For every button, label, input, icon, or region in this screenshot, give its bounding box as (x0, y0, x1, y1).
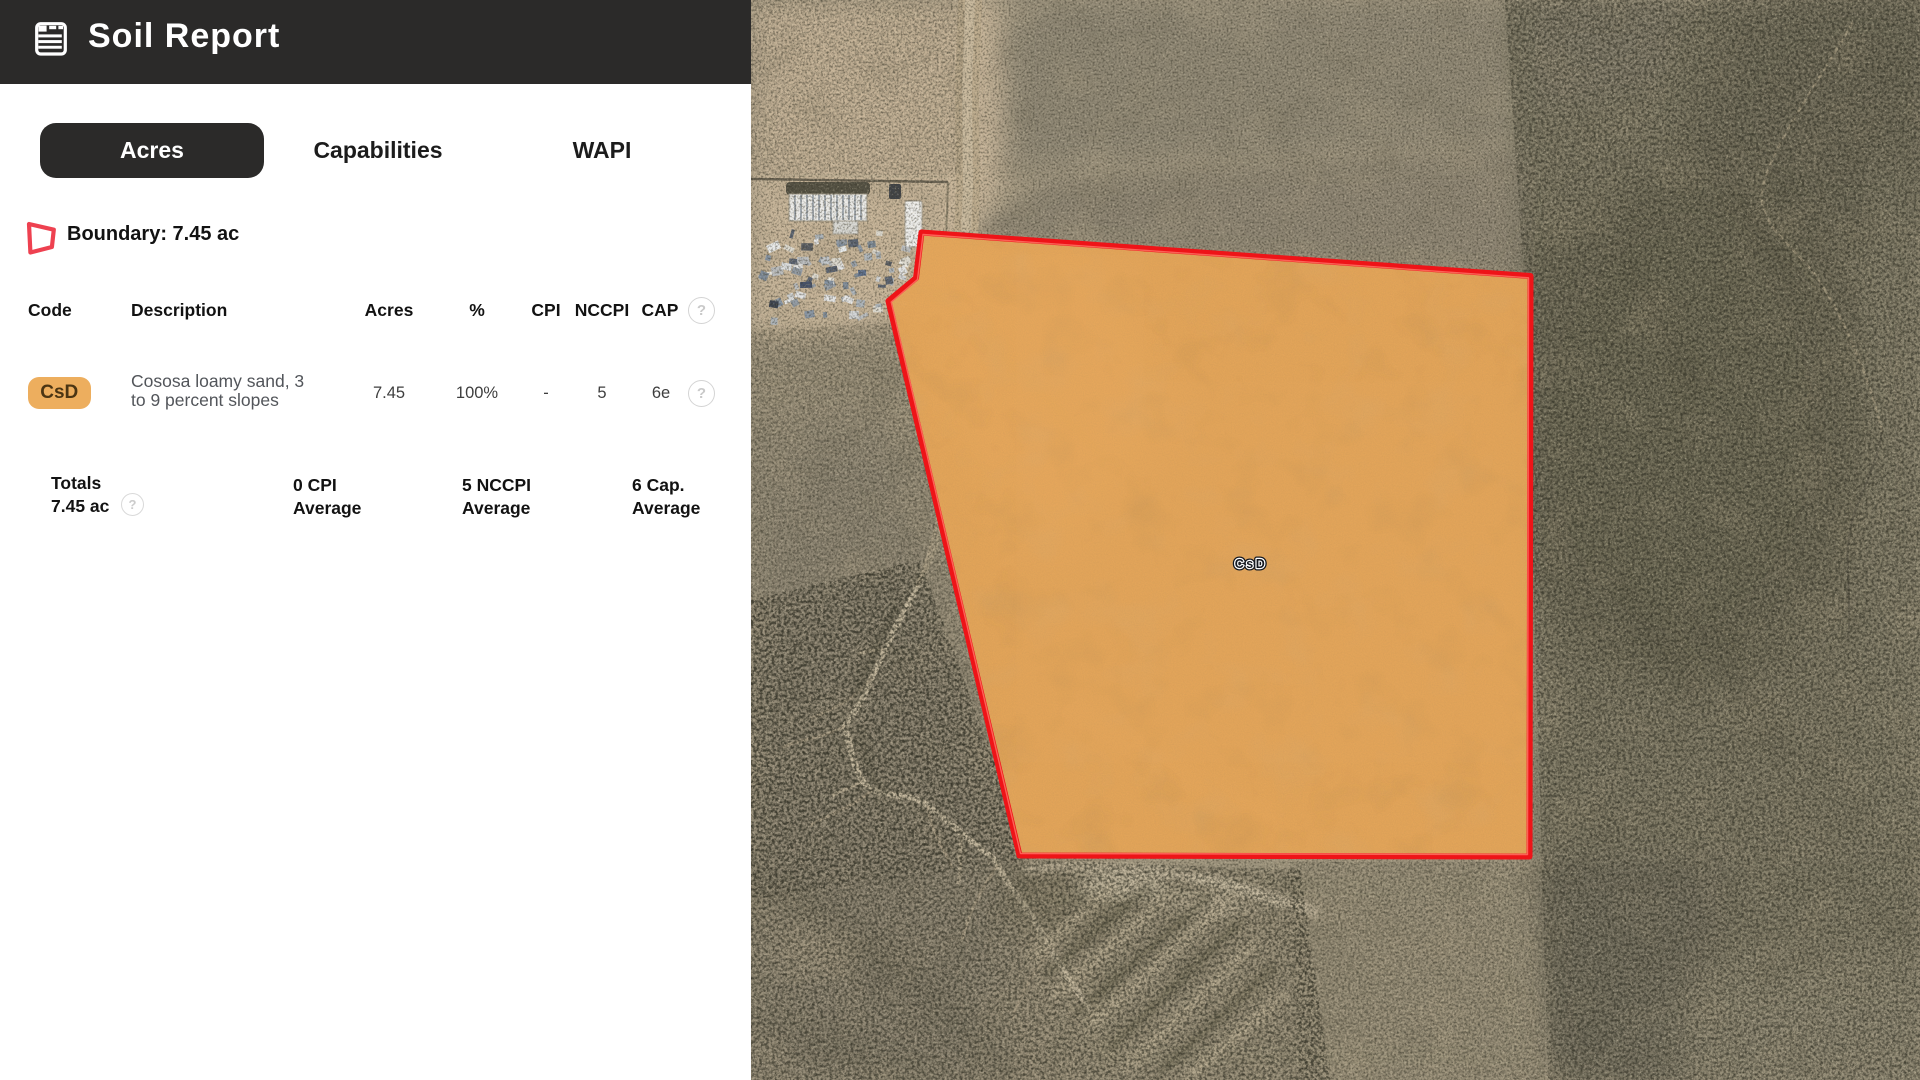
svg-text:CsD: CsD (1235, 557, 1268, 571)
